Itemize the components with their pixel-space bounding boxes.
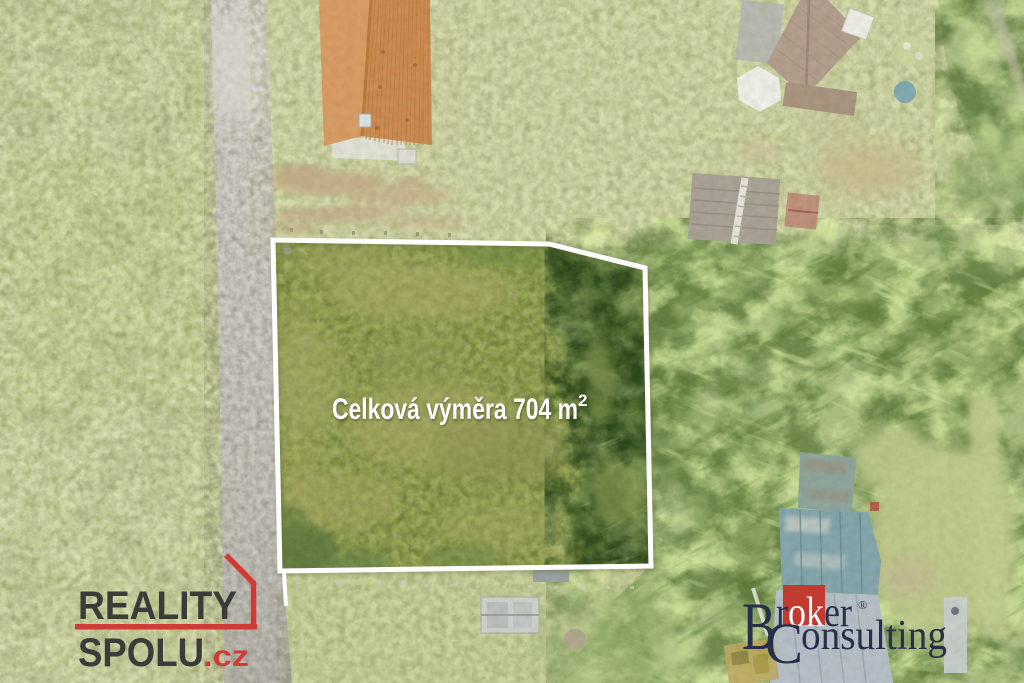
- svg-text:C: C: [765, 611, 803, 676]
- svg-text:®: ®: [858, 598, 867, 612]
- svg-text:SPOLU: SPOLU: [78, 631, 204, 675]
- svg-text:onsulting: onsulting: [801, 613, 947, 659]
- svg-text:REALITY: REALITY: [78, 584, 237, 628]
- svg-text:2: 2: [578, 391, 587, 410]
- svg-text:Celková výměra 704 m: Celková výměra 704 m: [332, 393, 578, 426]
- svg-text:.cz: .cz: [203, 640, 249, 673]
